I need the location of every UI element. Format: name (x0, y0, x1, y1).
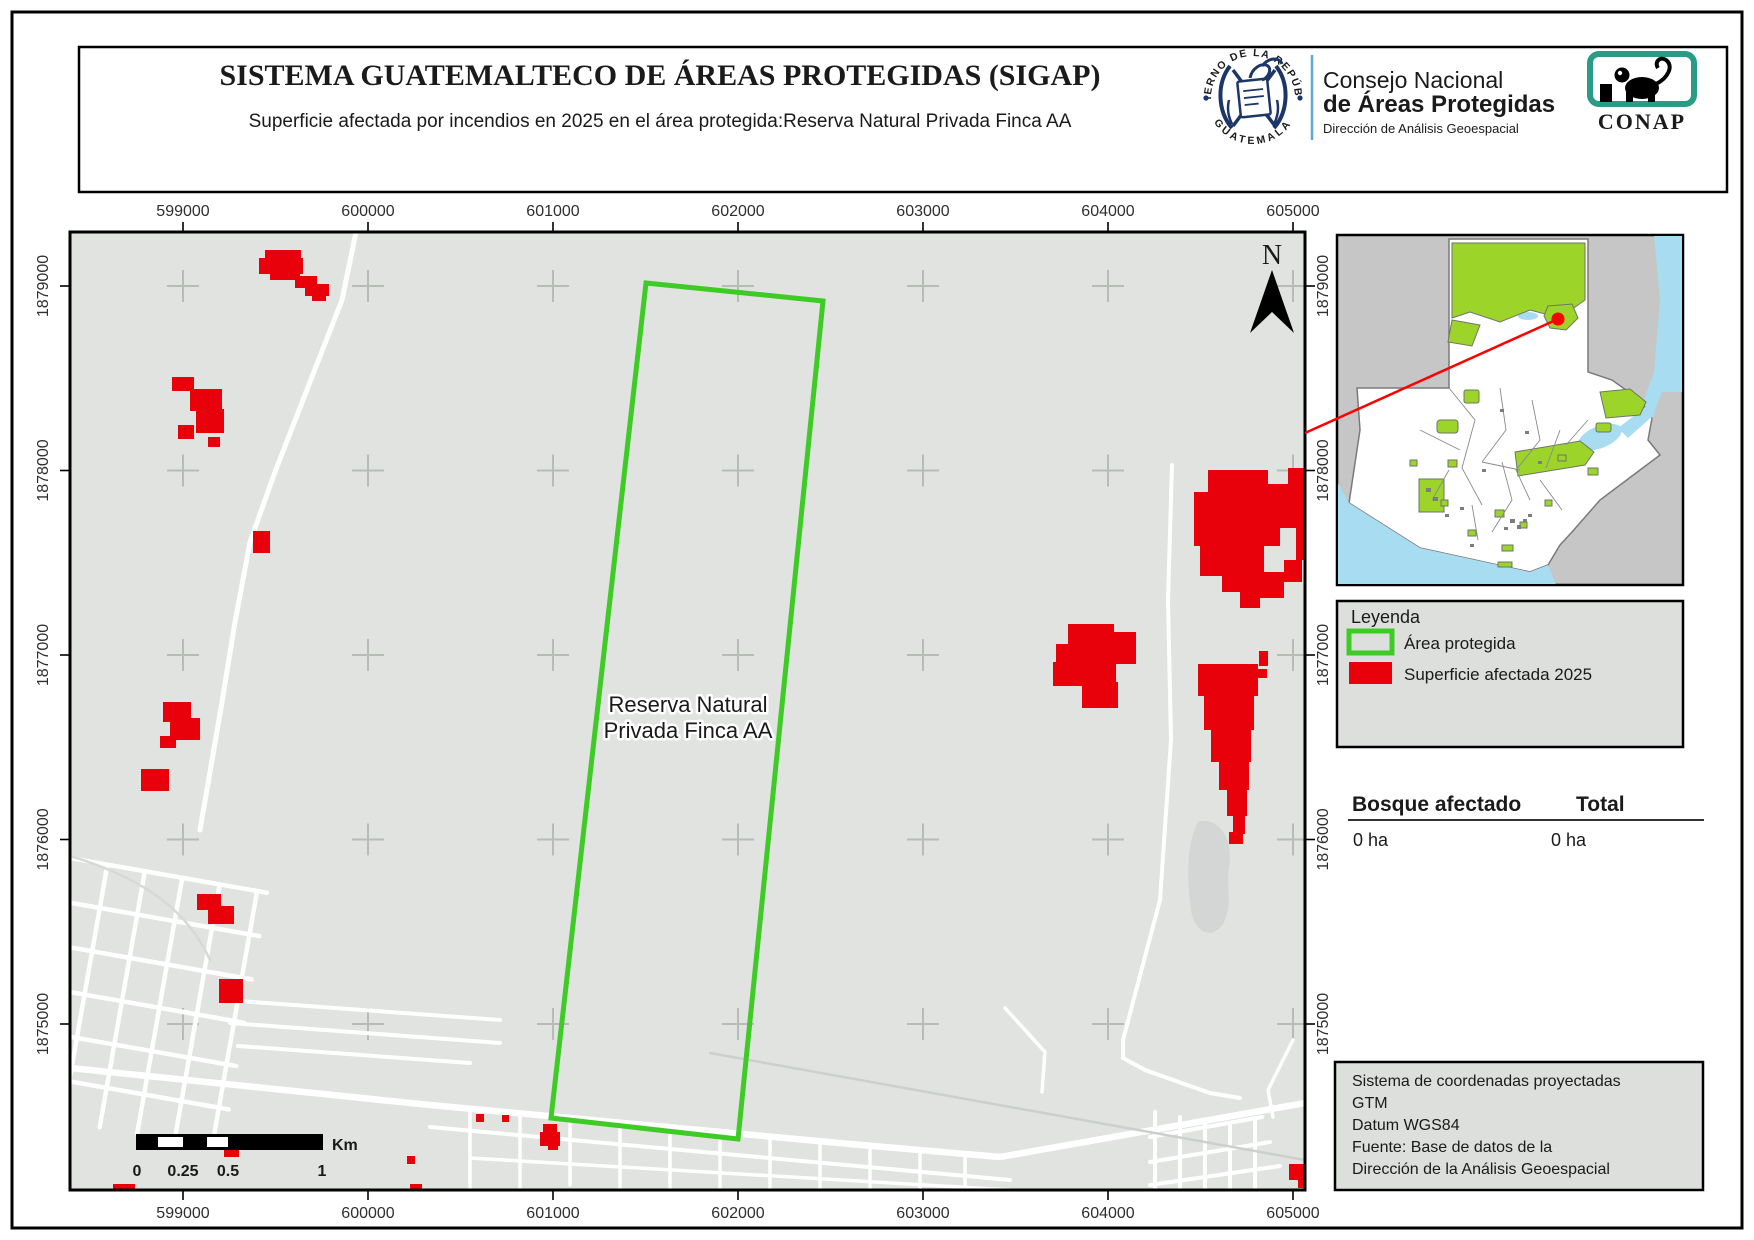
svg-text:0: 0 (133, 1163, 142, 1180)
org-name-line2: de Áreas Protegidas (1323, 90, 1555, 118)
info-line: Datum WGS84 (1352, 1117, 1460, 1134)
page-title: SISTEMA GUATEMALTECO DE ÁREAS PROTEGIDAS… (219, 59, 1100, 92)
axis-tick-label: 599000 (156, 1205, 209, 1222)
stats-value-total: 0 ha (1551, 830, 1587, 850)
axis-tick-label: 1878000 (1315, 439, 1332, 501)
map-document: SISTEMA GUATEMALTECO DE ÁREAS PROTEGIDAS… (0, 0, 1754, 1240)
map-sheet: { "header": { "title": "SISTEMA GUATEMAL… (0, 0, 1754, 1240)
axis-tick-label: 1875000 (1315, 993, 1332, 1055)
axis-tick-label: 604000 (1081, 1205, 1134, 1222)
info-line: Fuente: Base de datos de la (1352, 1139, 1552, 1156)
stats-block: Bosque afectado Total 0 ha 0 ha (1348, 793, 1704, 850)
locator-dot (1552, 313, 1565, 326)
org-name-line3: Dirección de Análisis Geoespacial (1323, 121, 1519, 136)
info-line: Dirección de la Análisis Geoespacial (1352, 1161, 1610, 1178)
axis-tick-label: 600000 (341, 203, 394, 220)
svg-text:N: N (1262, 240, 1282, 271)
svg-text:Reserva Natural: Reserva Natural (609, 692, 768, 717)
scale-unit: Km (332, 1137, 358, 1154)
info-line: GTM (1352, 1095, 1388, 1112)
axis-tick-label: 603000 (896, 203, 949, 220)
axis-tick-label: 600000 (341, 1205, 394, 1222)
stats-header-bosque: Bosque afectado (1352, 793, 1521, 816)
coordinate-info-box: Sistema de coordenadas proyectadas GTM D… (1335, 1062, 1703, 1190)
axis-tick-label: 1879000 (1315, 255, 1332, 317)
conap-label: CONAP (1598, 109, 1686, 134)
axis-tick-label: 601000 (526, 1205, 579, 1222)
svg-text:Privada Finca AA: Privada Finca AA (604, 718, 773, 743)
inset-locator-map (1305, 235, 1683, 585)
stats-divider (1348, 819, 1704, 821)
axis-tick-label: 605000 (1266, 1205, 1319, 1222)
lagoon-area (1188, 821, 1230, 933)
axis-tick-label: 1876000 (1315, 808, 1332, 870)
axis-tick-label: 1877000 (35, 624, 52, 686)
info-line: Sistema de coordenadas proyectadas (1352, 1073, 1621, 1090)
svg-text:0.5: 0.5 (217, 1163, 239, 1180)
protected-area-label: Reserva Natural Privada Finca AA (604, 692, 773, 743)
axis-tick-label: 1877000 (1315, 624, 1332, 686)
page-subtitle: Superficie afectada por incendios en 202… (249, 111, 1072, 132)
legend-panel: Leyenda Área protegida Superficie afecta… (1337, 601, 1683, 747)
axis-tick-label: 1878000 (35, 439, 52, 501)
axis-tick-label: 602000 (711, 1205, 764, 1222)
axis-tick-label: 1875000 (35, 993, 52, 1055)
legend-label-protected-area: Área protegida (1404, 634, 1516, 653)
legend-swatch-fire-area (1349, 662, 1392, 684)
legend-swatch-protected-area (1349, 631, 1392, 653)
stats-value-bosque: 0 ha (1353, 830, 1389, 850)
axis-tick-label: 599000 (156, 203, 209, 220)
axis-tick-label: 601000 (526, 203, 579, 220)
axis-tick-label: 1876000 (35, 808, 52, 870)
svg-text:1: 1 (318, 1163, 327, 1180)
axis-tick-label: 602000 (711, 203, 764, 220)
axis-tick-label: 604000 (1081, 203, 1134, 220)
conap-logo-icon: CONAP (1590, 54, 1694, 134)
stats-header-total: Total (1576, 793, 1625, 816)
legend-title: Leyenda (1351, 607, 1421, 627)
axis-tick-label: 1879000 (35, 255, 52, 317)
org-name-line1: Consejo Nacional (1323, 67, 1503, 93)
legend-label-fire-area: Superficie afectada 2025 (1404, 665, 1592, 684)
axis-tick-label: 603000 (896, 1205, 949, 1222)
svg-text:0.25: 0.25 (167, 1163, 198, 1180)
axis-tick-label: 605000 (1266, 203, 1319, 220)
